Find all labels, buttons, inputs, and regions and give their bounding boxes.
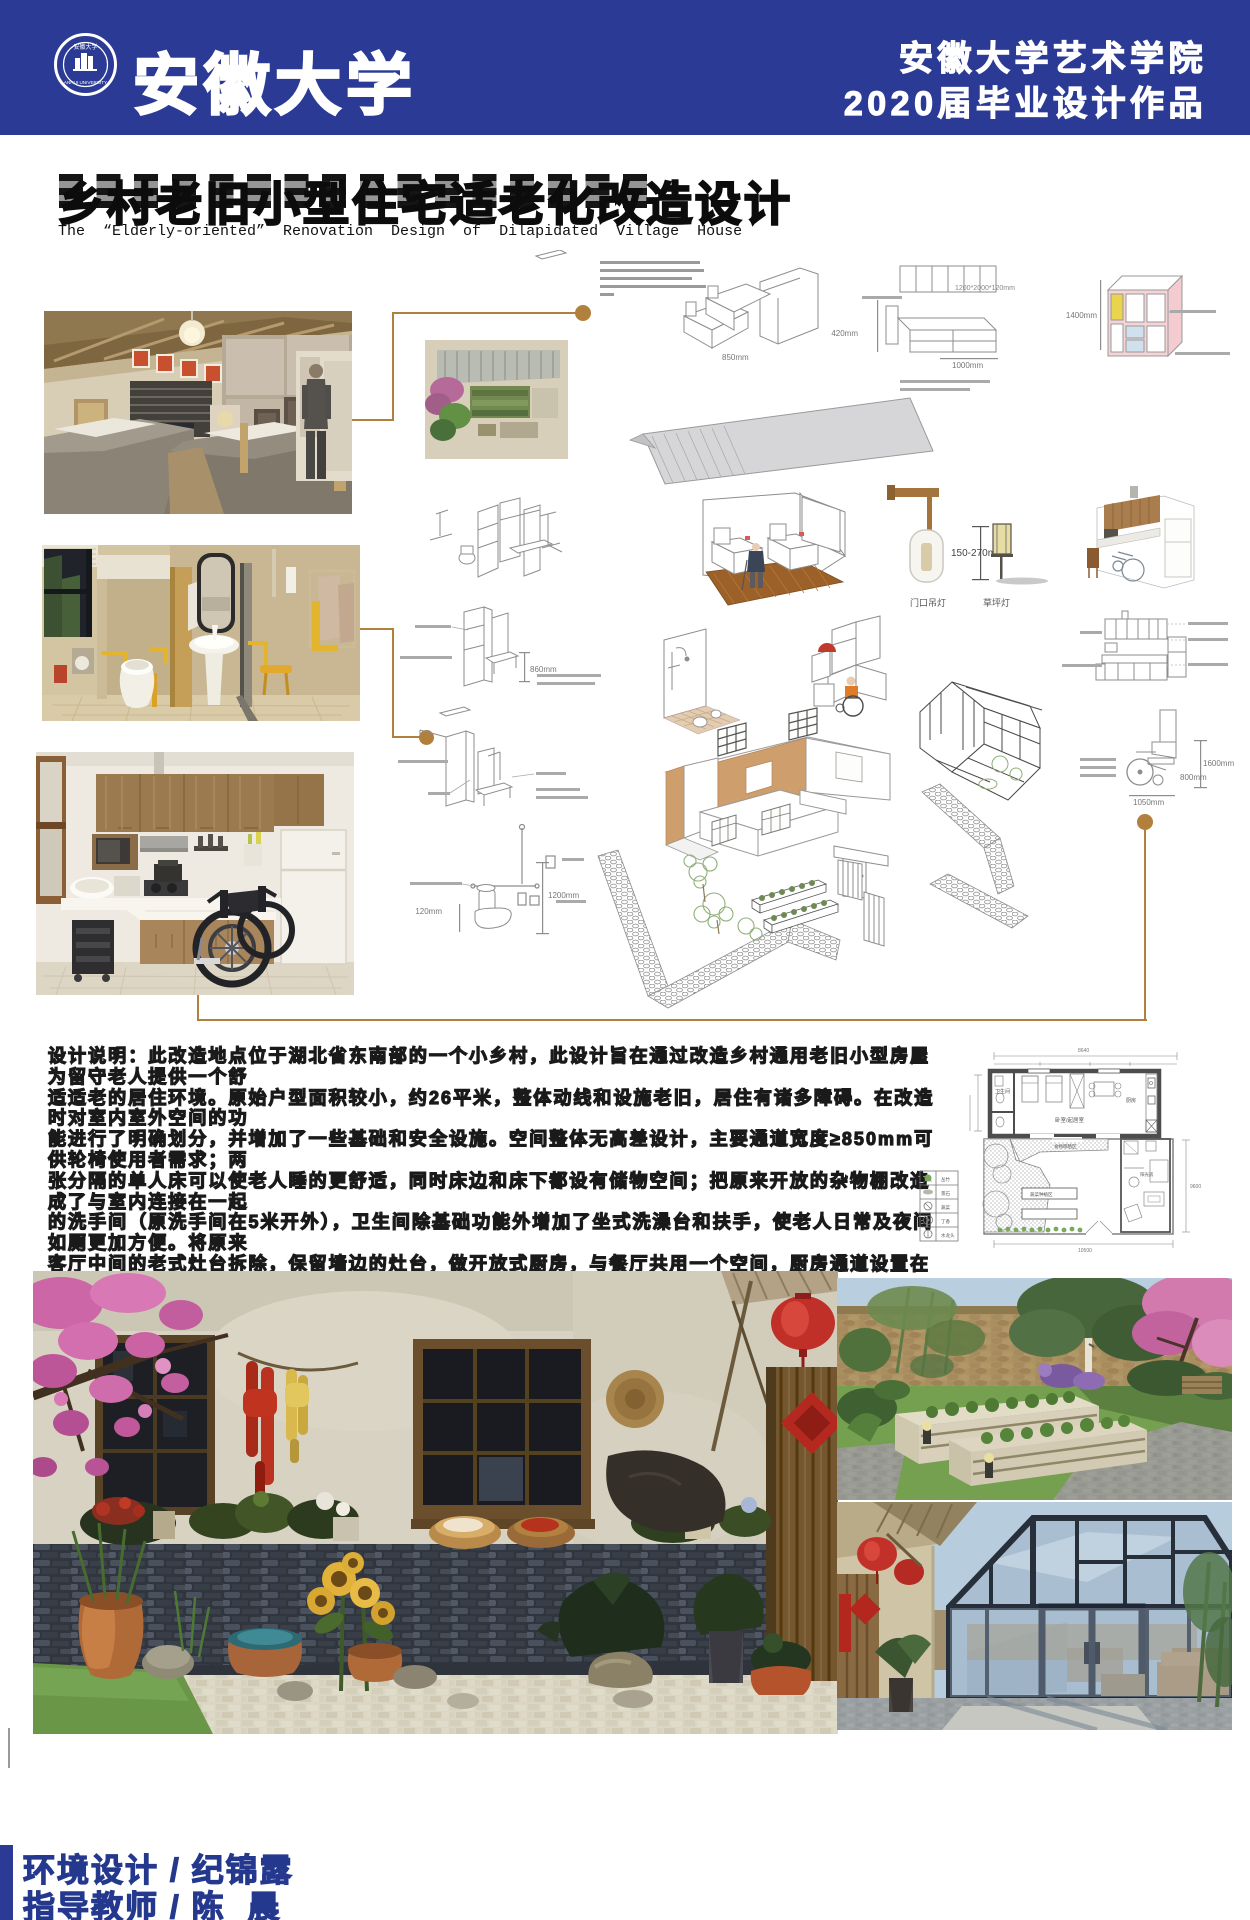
svg-text:厨房: 厨房 [1126,1097,1136,1104]
svg-text:1200mm: 1200mm [548,891,579,900]
svg-text:420mm: 420mm [831,329,858,338]
svg-text:丛竹: 丛竹 [941,1176,950,1183]
svg-text:蔬菜种植区: 蔬菜种植区 [1030,1191,1053,1198]
svg-text:10500: 10500 [1078,1248,1092,1254]
svg-text:草坪灯: 草坪灯 [983,597,1010,608]
svg-text:1200*2000*120mm: 1200*2000*120mm [955,285,1015,292]
svg-text:860mm: 860mm [530,665,557,674]
svg-text:ANHUI UNIVERSITY: ANHUI UNIVERSITY [64,80,107,85]
svg-text:卫生间: 卫生间 [995,1088,1010,1095]
svg-text:1000mm: 1000mm [952,361,983,370]
svg-text:安徽大学: 安徽大学 [73,43,97,51]
svg-text:1600mm: 1600mm [1203,759,1234,768]
svg-text:8640: 8640 [1078,1048,1089,1054]
svg-text:食物晾晒区: 食物晾晒区 [1054,1143,1077,1150]
svg-text:景石: 景石 [941,1191,950,1197]
svg-text:丁香: 丁香 [941,1218,950,1225]
svg-text:9600: 9600 [1190,1184,1201,1190]
svg-text:1050mm: 1050mm [1133,798,1164,807]
svg-text:850mm: 850mm [722,353,749,362]
svg-text:阳光房: 阳光房 [1140,1171,1154,1178]
svg-text:120mm: 120mm [415,907,442,916]
svg-text:门口吊灯: 门口吊灯 [910,597,946,608]
svg-text:水龙头: 水龙头 [941,1232,955,1239]
svg-text:1400mm: 1400mm [1066,311,1097,320]
svg-text:800mm: 800mm [1180,773,1207,782]
svg-text:卧室/起居室: 卧室/起居室 [1055,1116,1085,1124]
svg-text:蔬菜: 蔬菜 [941,1204,950,1211]
